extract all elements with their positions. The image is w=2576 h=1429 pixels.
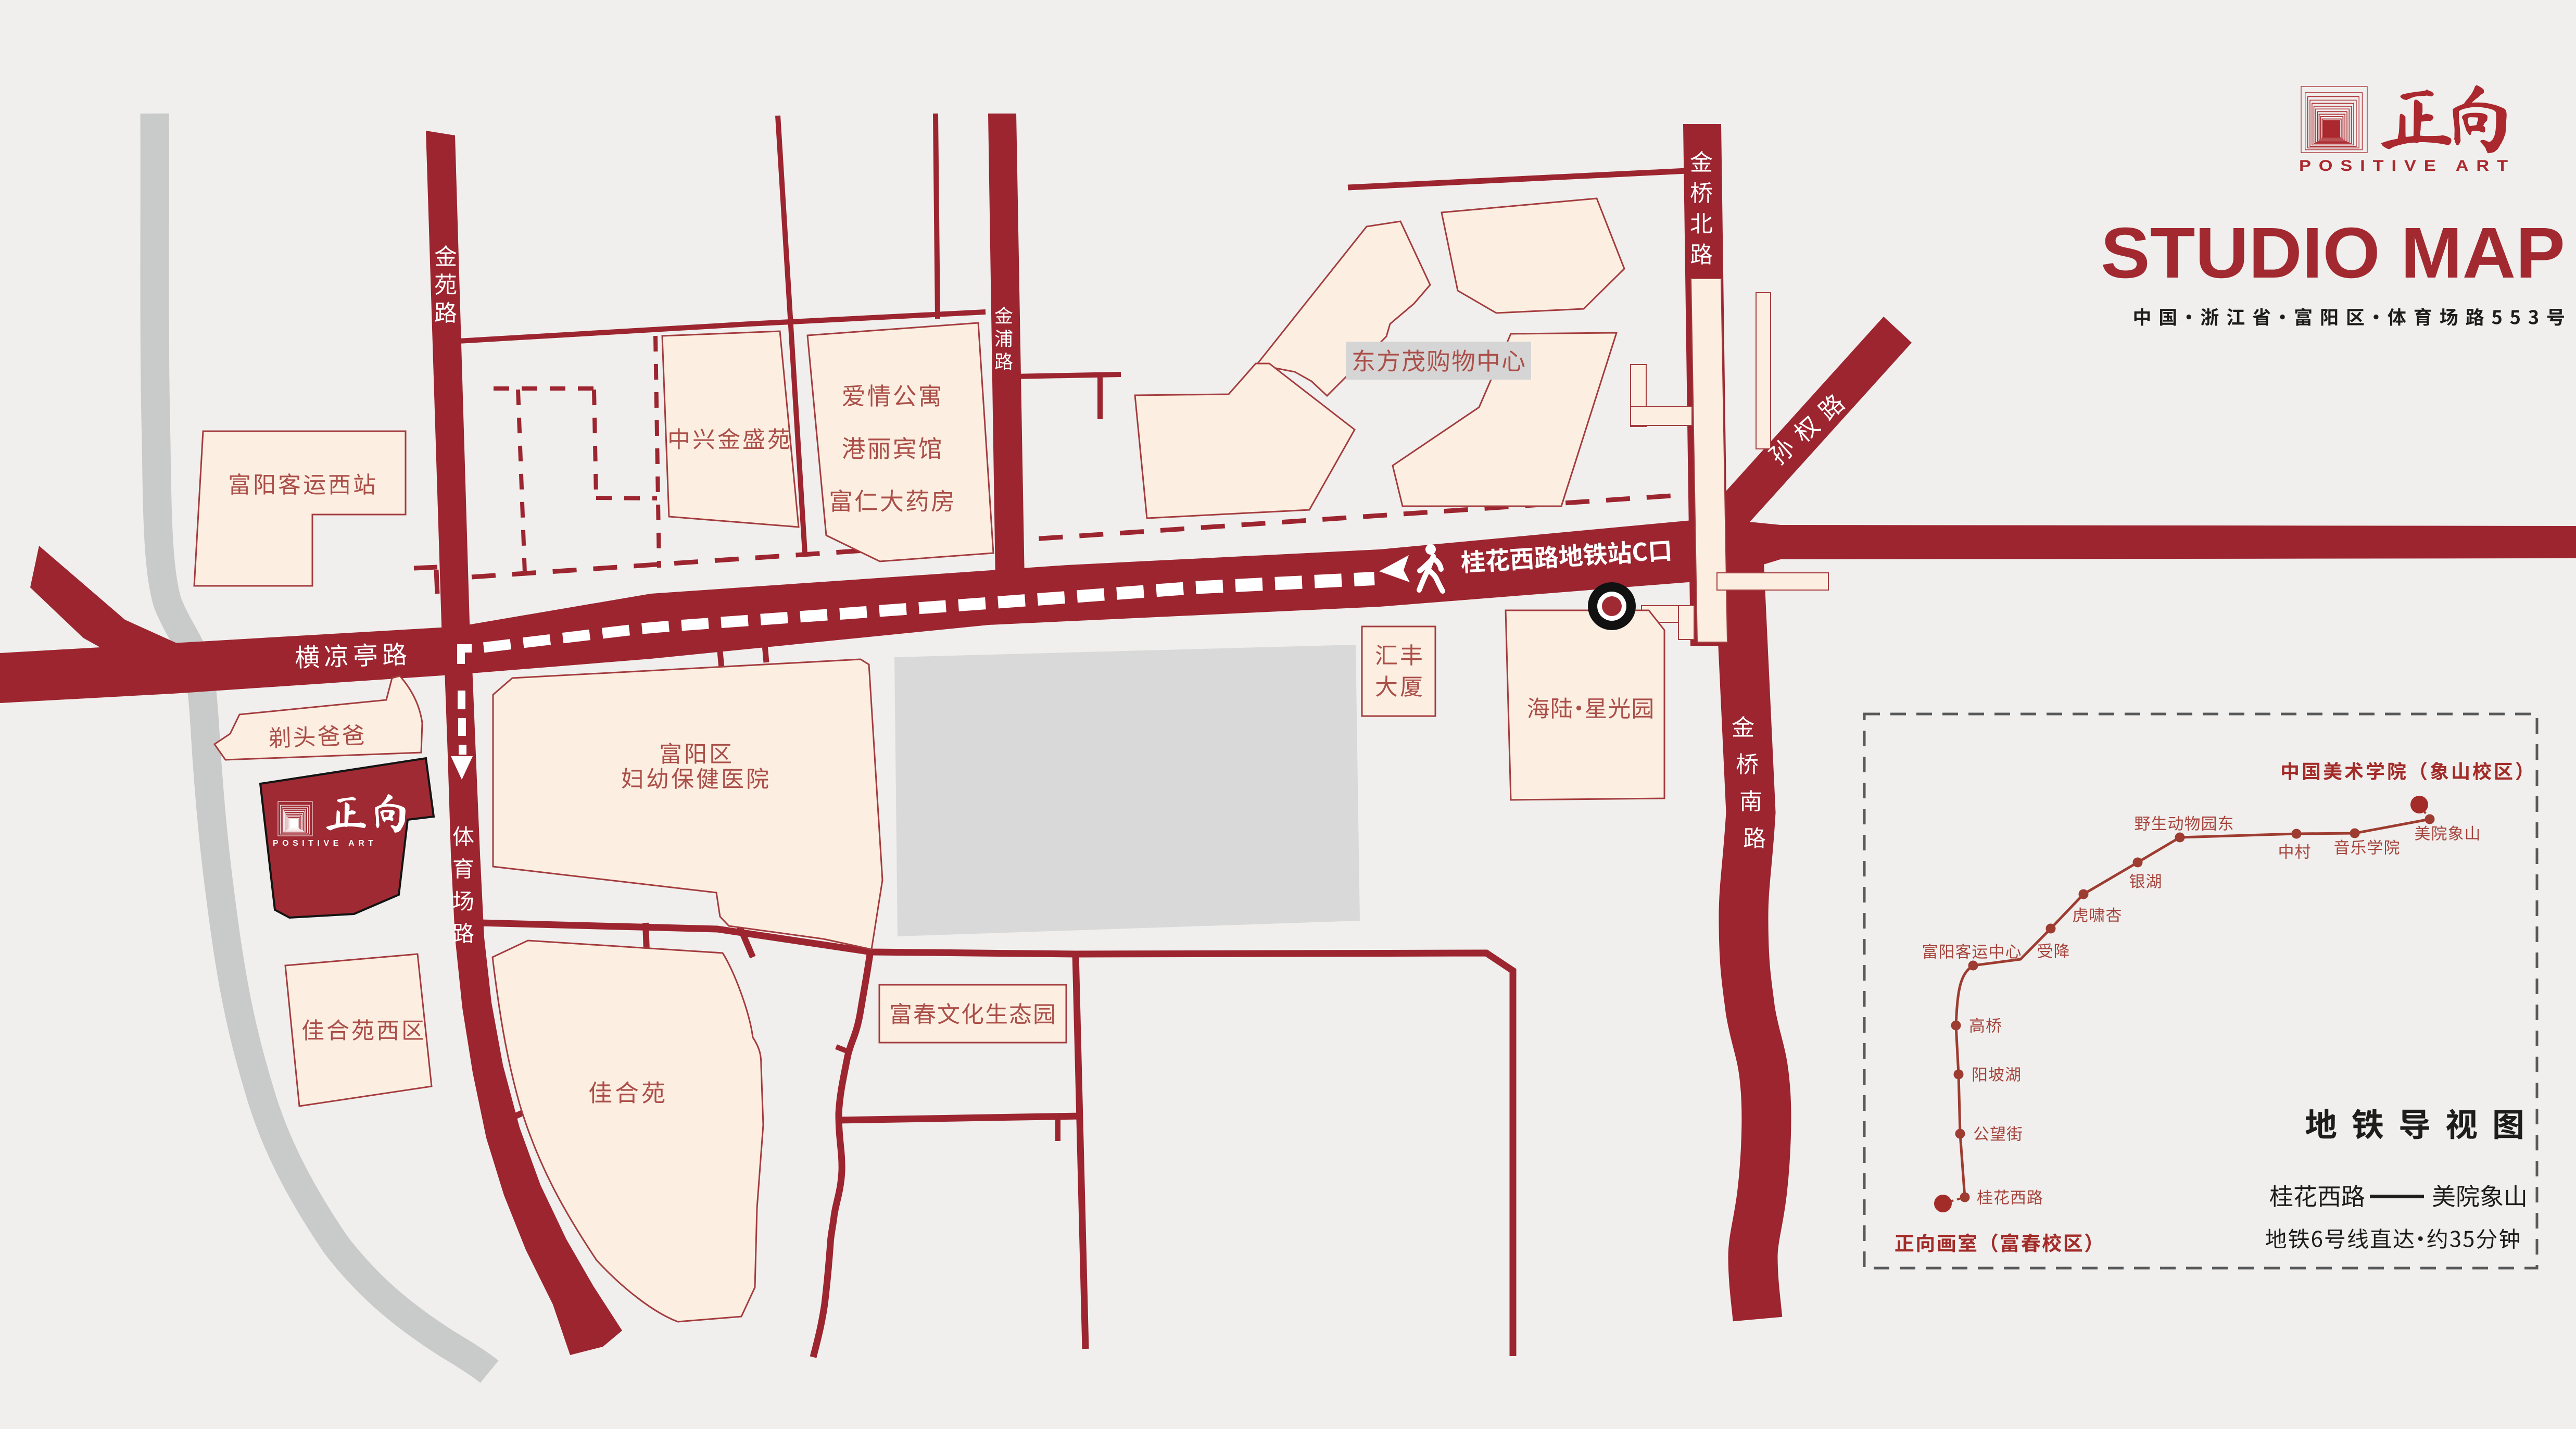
svg-text:POSITIVE ART: POSITIVE ART [2299, 157, 2516, 174]
svg-text:STUDIO MAP: STUDIO MAP [2101, 213, 2565, 293]
svg-text:POSITIVE ART: POSITIVE ART [273, 839, 377, 848]
